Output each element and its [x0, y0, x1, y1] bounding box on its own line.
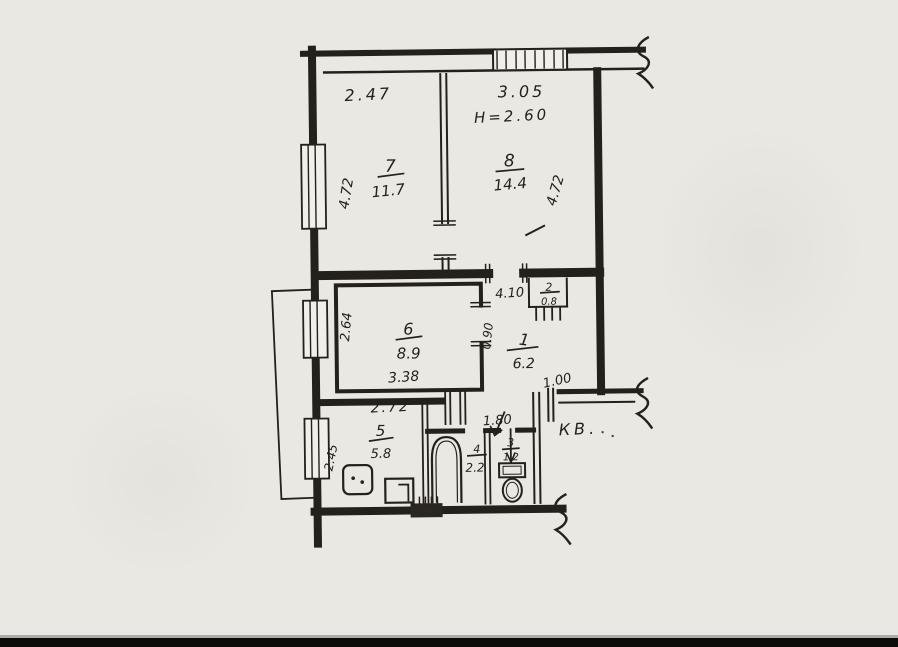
closet-shelf-hatch [536, 308, 560, 320]
dim-right-depth: 4.72 [544, 173, 568, 207]
top-window-icon [493, 49, 567, 71]
vent-duct-hatch [410, 497, 442, 517]
toilet-icon [499, 463, 525, 502]
room4-area-label: 2.2 [465, 461, 484, 475]
dim-room7-width: 2.47 [344, 84, 392, 105]
window-icon [303, 301, 328, 358]
floor-plan-photo: 2.47 3.05 H=2.60 7 11.7 8 14.4 4.72 4.72… [0, 0, 898, 647]
photo-edge [0, 638, 898, 647]
dim-room8-width: 3.05 [498, 82, 546, 102]
room2-number-label: 2 [545, 281, 552, 294]
room3-area-label: 1.2 [503, 452, 519, 463]
room8-area-label: 14.4 [493, 174, 528, 195]
bathtub-icon [432, 437, 462, 502]
room6-area-label: 8.9 [397, 344, 421, 362]
dim-room6-depth: 2.64 [338, 312, 356, 342]
dim-room6-width: 3.38 [388, 369, 420, 387]
room3-number-label: 3 [507, 436, 514, 449]
ink-dot [611, 435, 613, 437]
apartment-label: КВ. [558, 419, 598, 440]
dim-room6-door: 0.90 [479, 322, 496, 350]
room1-area-label: 6.2 [513, 356, 536, 372]
room2-area-label: 0.8 [541, 297, 557, 308]
sink-icon [385, 478, 413, 502]
room7-number-label: 7 [385, 157, 396, 177]
stove-icon [343, 465, 372, 494]
ceiling-height-label: H=2.60 [474, 105, 550, 127]
room7-area-label: 11.7 [371, 180, 406, 201]
room6-number-label: 6 [403, 319, 413, 338]
wall-break-icon [637, 379, 652, 428]
dim-entry-door: 1.00 [542, 371, 574, 392]
pencil-tick [526, 226, 544, 235]
dim-corridor-length: 4.10 [495, 285, 525, 302]
room5-number-label: 5 [376, 422, 386, 440]
interior-walls [316, 72, 602, 505]
floor-plan-drawing: 2.47 3.05 H=2.60 7 11.7 8 14.4 4.72 4.72… [0, 0, 898, 647]
room8-number-label: 8 [504, 151, 515, 171]
ink-dot [601, 431, 603, 433]
dim-bath-entry: 1.80 [482, 413, 512, 430]
window-icon [301, 145, 326, 229]
dim-left-depth: 4.72 [336, 177, 357, 210]
wall-break-icon [638, 38, 653, 88]
room5-area-label: 5.8 [370, 447, 391, 462]
dim-kitchen-width: 2.72 [370, 399, 410, 417]
wall-break-icon [555, 495, 570, 544]
room4-number-label: 4 [473, 443, 480, 456]
room1-number-label: 1 [518, 330, 531, 350]
